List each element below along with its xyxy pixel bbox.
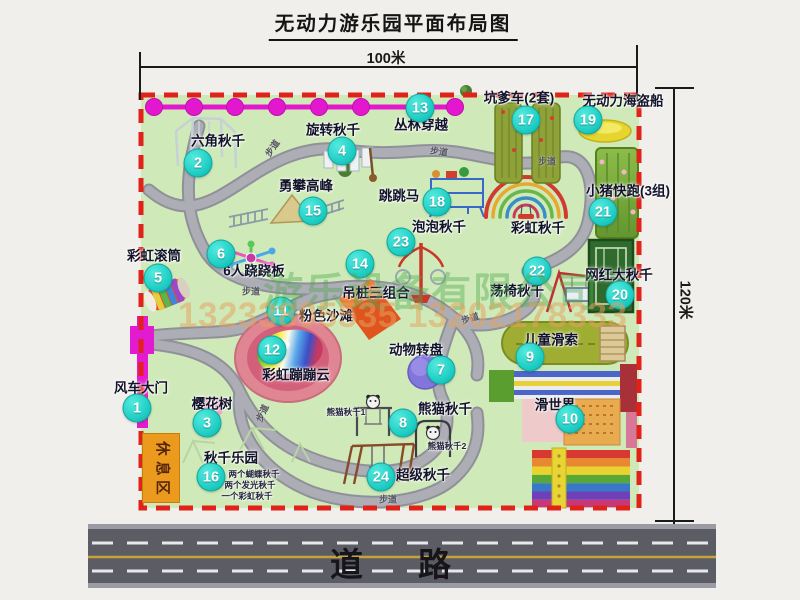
attraction-badge-15: 15: [299, 197, 328, 226]
attraction-label-2: 六角秋千: [191, 134, 245, 148]
attraction-badge-23: 23: [387, 228, 416, 257]
height-dimension-label: 120米: [676, 281, 697, 320]
rest-area-char: 区: [152, 481, 171, 496]
attraction-label-6: 6人跷跷板: [223, 264, 285, 278]
extra-label: 两个发光秋千: [224, 481, 275, 490]
extra-label: 一个彩虹秋千: [221, 492, 272, 501]
attraction-label-1: 风车大门: [114, 381, 168, 395]
attraction-badge-9: 9: [516, 343, 545, 372]
rest-area-sign: 休息区: [142, 433, 180, 503]
attraction-label-4: 旋转秋千: [306, 123, 360, 137]
attraction-badge-21: 21: [589, 198, 618, 227]
rest-area-char: 息: [152, 461, 171, 476]
width-dimension-label: 100米: [367, 47, 406, 68]
attraction-badge-1: 1: [123, 394, 152, 423]
attraction-label-22: 荡椅秋千: [490, 284, 544, 298]
attraction-badge-14: 14: [346, 250, 375, 279]
attraction-badge-18: 18: [423, 188, 452, 217]
playground-map-screenshot: 无动力游乐园平面布局图 100米 120米 道路 休息区 游乐设备有限公司 13…: [0, 0, 800, 600]
attraction-label-17: 坑爹车(2套): [484, 91, 555, 105]
road-label: 道路: [330, 538, 506, 586]
attraction-badge-5: 5: [144, 264, 173, 293]
attraction-label-7: 动物转盘: [389, 343, 443, 357]
attraction-badge-7: 7: [427, 356, 456, 385]
attraction-label-12: 彩虹蹦蹦云: [262, 368, 330, 382]
attraction-badge-3: 3: [193, 409, 222, 438]
attraction-badge-24: 24: [367, 463, 396, 492]
attraction-label-5: 彩虹滚筒: [127, 249, 181, 263]
extra-label: 两个蝴蝶秋千: [228, 470, 279, 479]
attraction-badge-6: 6: [207, 240, 236, 269]
attraction-badge-16: 16: [197, 463, 226, 492]
extra-label: 熊猫秋千1: [327, 408, 366, 417]
attraction-badge-19: 19: [574, 106, 603, 135]
attraction-label-11: 粉色沙滩: [299, 309, 353, 323]
attraction-label-14: 吊桩三组合: [342, 286, 410, 300]
walkway-label: 步道: [242, 285, 260, 298]
attraction-label-23: 泡泡秋千: [412, 220, 466, 234]
attraction-badge-10: 10: [556, 405, 585, 434]
attraction-badge-2: 2: [184, 149, 213, 178]
attraction-badge-4: 4: [328, 137, 357, 166]
attraction-label-8: 熊猫秋千: [418, 402, 472, 416]
walkway-label: 步道: [379, 493, 397, 506]
walkway-label: 步道: [538, 155, 556, 168]
attraction-badge-13: 13: [406, 94, 435, 123]
page-title: 无动力游乐园平面布局图: [269, 7, 518, 41]
attraction-label-19: 无动力海盗船: [583, 94, 664, 108]
attraction-label-15: 勇攀高峰: [279, 179, 333, 193]
walkway-label: 步道: [429, 143, 449, 158]
attraction-badge-11: 11: [267, 297, 296, 326]
attraction-label-18: 跳跳马: [379, 189, 420, 203]
attraction-badge-20: 20: [606, 281, 635, 310]
rest-area-char: 休: [152, 441, 171, 456]
attraction-badge-8: 8: [389, 409, 418, 438]
attraction-label-21: 小猪快跑(3组): [586, 184, 670, 198]
rainbow-slide-icon: [532, 450, 630, 507]
attraction-badge-17: 17: [512, 106, 541, 135]
extra-label: 彩虹秋千: [511, 221, 565, 235]
attraction-label-24: 超级秋千: [396, 468, 450, 482]
attraction-badge-12: 12: [258, 336, 287, 365]
extra-label: 熊猫秋千2: [428, 442, 467, 451]
attraction-badge-22: 22: [523, 257, 552, 286]
pink-beach-icon: [235, 314, 341, 402]
